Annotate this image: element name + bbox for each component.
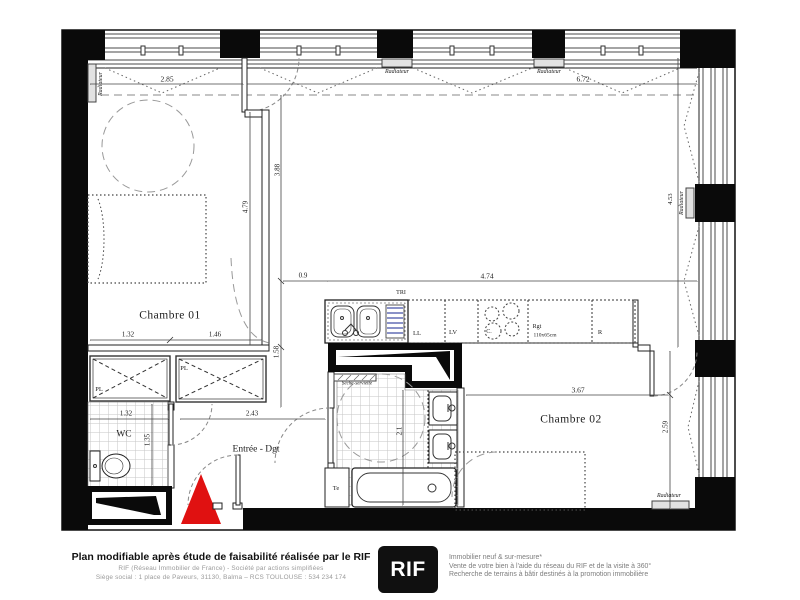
footer-right-block: Immobilier neuf & sur-mesure* Vente de v… <box>449 554 651 580</box>
label-lave-vaisselle: LV <box>449 330 457 337</box>
radiator-icon <box>88 64 96 102</box>
label-lave-linge: LL <box>413 331 421 338</box>
dim-2-85: 2.85 <box>160 75 173 83</box>
dim-2-1: 2.1 <box>397 427 404 436</box>
dim-4-53: 4.53 <box>668 193 675 204</box>
footer-left-block: Plan modifiable après étude de faisabili… <box>58 551 384 581</box>
radiator-icon <box>382 59 412 67</box>
label-refrigerateur: R <box>598 330 602 337</box>
radiator-label: Radiateur <box>385 69 409 75</box>
room-label-entree: Entrée - Dgt <box>233 445 280 455</box>
door-swing <box>245 58 299 112</box>
radiator-label: Radiateur <box>98 72 104 96</box>
kitchen-sink <box>325 300 408 343</box>
label-tri: TRI <box>396 290 406 296</box>
footer-service-3: Recherche de terrains à bâtir destinés à… <box>449 571 651 580</box>
dim-4-79: 4.79 <box>243 201 250 213</box>
label-rangement: Rgt <box>533 324 542 330</box>
chambre02-room <box>452 452 585 510</box>
bathtub <box>352 468 456 507</box>
door-leaf <box>169 404 173 445</box>
footer-service-2: Vente de votre bien à l'aide du réseau d… <box>449 563 651 572</box>
floor-plan-drawing <box>0 0 800 545</box>
rif-logo-text: RIF <box>390 558 425 582</box>
dim-2-59: 2.59 <box>663 421 670 433</box>
door-swing <box>275 408 330 463</box>
bed <box>455 452 585 510</box>
entry-bench <box>86 486 172 525</box>
dim-wc-1-35: 1.35 <box>145 434 152 446</box>
right-window-wall <box>684 68 727 477</box>
label-rangement-size: 110x65cm <box>533 333 556 339</box>
footer-company-line: RIF (Réseau Immobilier de France) - Soci… <box>58 565 384 572</box>
footer-address-line: Siège social : 1 place de Paveurs, 31130… <box>58 574 384 581</box>
floor-plan-page: Chambre 01 Chambre 02 WC Entrée - Dgt Ra… <box>0 0 800 600</box>
closet-right <box>176 356 266 402</box>
dim-4-74: 4.74 <box>480 272 493 280</box>
radiator-label: Radiateur <box>657 493 681 499</box>
dim-2-43: 2.43 <box>246 411 258 418</box>
dim-6-72: 6.72 <box>576 75 589 83</box>
door-leaf <box>650 351 654 396</box>
dim-1-46: 1.46 <box>209 332 221 339</box>
radiator-icon <box>686 188 694 218</box>
turning-circle <box>102 100 194 192</box>
footer-service-1: Immobilier neuf & sur-mesure* <box>449 554 651 563</box>
entrance-arrow <box>181 474 221 524</box>
door-leaf <box>242 58 247 112</box>
radiator-label: Radiateur <box>537 69 561 75</box>
closets <box>90 356 266 402</box>
room-label-wc: WC <box>116 430 131 440</box>
dim-0-9: 0.9 <box>299 273 308 280</box>
dim-1-32: 1.32 <box>122 332 134 339</box>
label-cuisson: C. <box>486 329 492 335</box>
dim-3-88: 3.88 <box>275 164 282 176</box>
footer-title: Plan modifiable après étude de faisabili… <box>58 551 384 563</box>
room-label-chambre02: Chambre 02 <box>540 414 602 426</box>
dim-wc-1-32: 1.32 <box>120 411 132 418</box>
label-tablette: Te <box>333 486 339 493</box>
room-label-chambre01: Chambre 01 <box>139 310 201 322</box>
door-leaf <box>236 455 240 505</box>
label-placard-left: PL <box>95 387 103 394</box>
radiator-label: Radiateur <box>679 191 685 215</box>
door-swing <box>171 404 212 445</box>
bed <box>88 195 206 283</box>
radiator-icon <box>652 501 689 509</box>
closet-left <box>90 356 170 401</box>
dim-1-58: 1.58 <box>274 346 281 358</box>
label-placard-right: PL <box>180 366 188 373</box>
label-seche-serviette: Sèche-serviette <box>342 382 372 387</box>
door-leaf <box>328 408 333 463</box>
rif-logo: RIF <box>378 546 438 593</box>
bathroom <box>275 374 458 507</box>
dim-3-67: 3.67 <box>571 386 584 394</box>
door-swing <box>654 351 697 396</box>
radiator-icon <box>534 59 564 67</box>
towel-radiator <box>334 374 376 381</box>
